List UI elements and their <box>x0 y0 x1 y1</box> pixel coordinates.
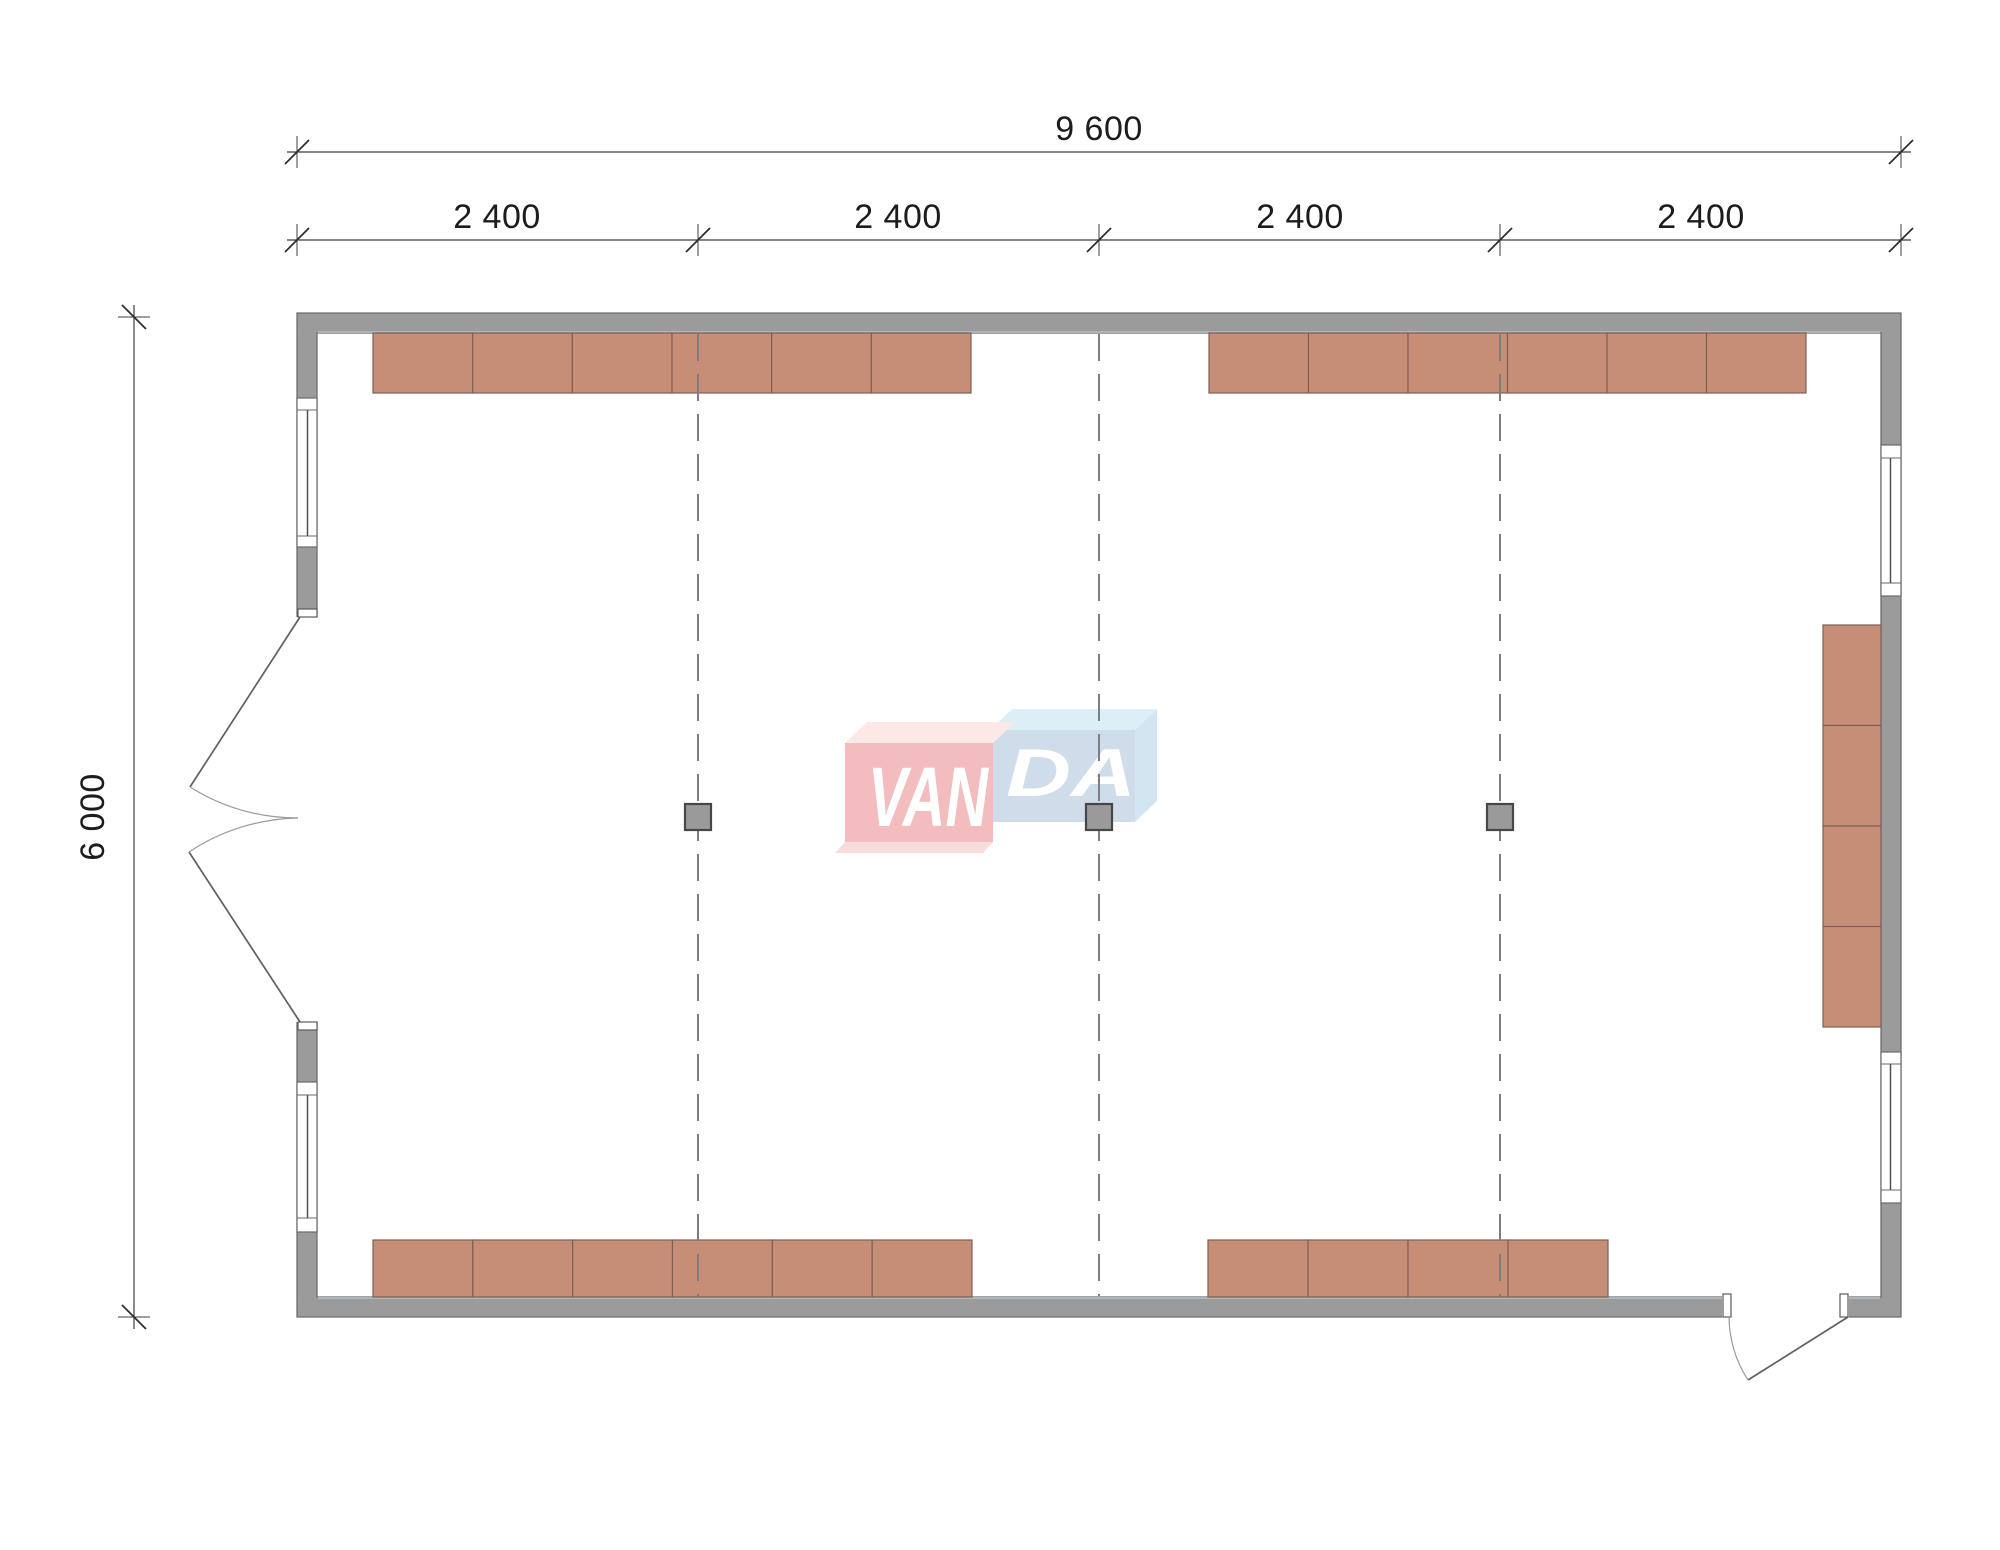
furniture-unit <box>1823 726 1881 827</box>
left-double-door <box>189 617 300 1022</box>
bottom-door-arc <box>1729 1317 1748 1380</box>
left-door-leaf-bottom <box>189 852 300 1022</box>
dimension-annotations: 9 600 2 400 2 400 2 400 2 400 6 000 <box>74 110 1913 1329</box>
structural-column <box>1086 804 1112 830</box>
furniture-unit <box>1823 826 1881 927</box>
furniture-unit <box>1209 333 1309 393</box>
furniture-unit <box>1408 333 1508 393</box>
furniture-unit <box>871 333 971 393</box>
left-door-leaf-top <box>190 617 300 787</box>
left-door-arc-top <box>190 787 298 818</box>
furniture-unit <box>772 1240 872 1297</box>
furniture-unit <box>672 333 772 393</box>
left-door-jamb-top <box>298 609 317 617</box>
dim-label-segment-4: 2 400 <box>1657 198 1745 236</box>
structural-column <box>1487 804 1513 830</box>
furniture-unit <box>1508 1240 1608 1297</box>
furniture-unit <box>373 1240 473 1297</box>
furniture-unit <box>1408 1240 1508 1297</box>
floor-plan-canvas: VAN DA 9 600 2 400 2 400 2 4 <box>0 0 2000 1550</box>
window-right-lower <box>1881 1052 1901 1203</box>
dim-label-segment-3: 2 400 <box>1256 198 1344 236</box>
furniture-unit <box>473 333 573 393</box>
left-door-jamb-bottom <box>298 1022 317 1030</box>
window-left-upper <box>297 398 317 547</box>
column-layer <box>685 804 1513 830</box>
furniture-unit <box>673 1240 773 1297</box>
dim-label-total-width: 9 600 <box>1055 110 1143 148</box>
furniture-unit <box>473 1240 573 1297</box>
furniture-unit <box>772 333 872 393</box>
furniture-unit <box>1707 333 1807 393</box>
window-left-lower <box>297 1082 317 1232</box>
furniture-unit <box>572 333 672 393</box>
watermark-pink-box-top <box>845 722 1015 743</box>
vanda-watermark: VAN DA <box>835 709 1157 853</box>
bottom-door-leaf <box>1748 1317 1848 1380</box>
furniture-unit <box>373 333 473 393</box>
bottom-door-opening <box>1722 1295 1849 1319</box>
watermark-text-da: DA <box>1006 735 1136 811</box>
furniture-unit <box>872 1240 972 1297</box>
furniture-unit <box>1823 625 1881 726</box>
bottom-door-jamb-left <box>1723 1294 1731 1317</box>
left-door-opening <box>295 617 319 1022</box>
watermark-text-van: VAN <box>868 750 990 844</box>
dim-label-segment-2: 2 400 <box>854 198 942 236</box>
bottom-door-jamb-right <box>1840 1294 1848 1317</box>
dim-label-segment-1: 2 400 <box>453 198 541 236</box>
left-door-arc-bottom <box>189 818 298 852</box>
dim-label-height: 6 000 <box>74 773 112 861</box>
structural-column <box>685 804 711 830</box>
furniture-unit <box>573 1240 673 1297</box>
furniture-unit <box>1607 333 1707 393</box>
window-right-upper <box>1881 445 1901 596</box>
watermark-blue-box-top <box>990 709 1157 730</box>
furniture-unit <box>1208 1240 1308 1297</box>
furniture-unit <box>1823 927 1881 1028</box>
floor-plan-page: VAN DA 9 600 2 400 2 400 2 4 <box>0 0 2000 1550</box>
furniture-unit <box>1508 333 1608 393</box>
furniture-unit <box>1308 1240 1408 1297</box>
bottom-right-door <box>1729 1317 1848 1380</box>
furniture-unit <box>1309 333 1409 393</box>
